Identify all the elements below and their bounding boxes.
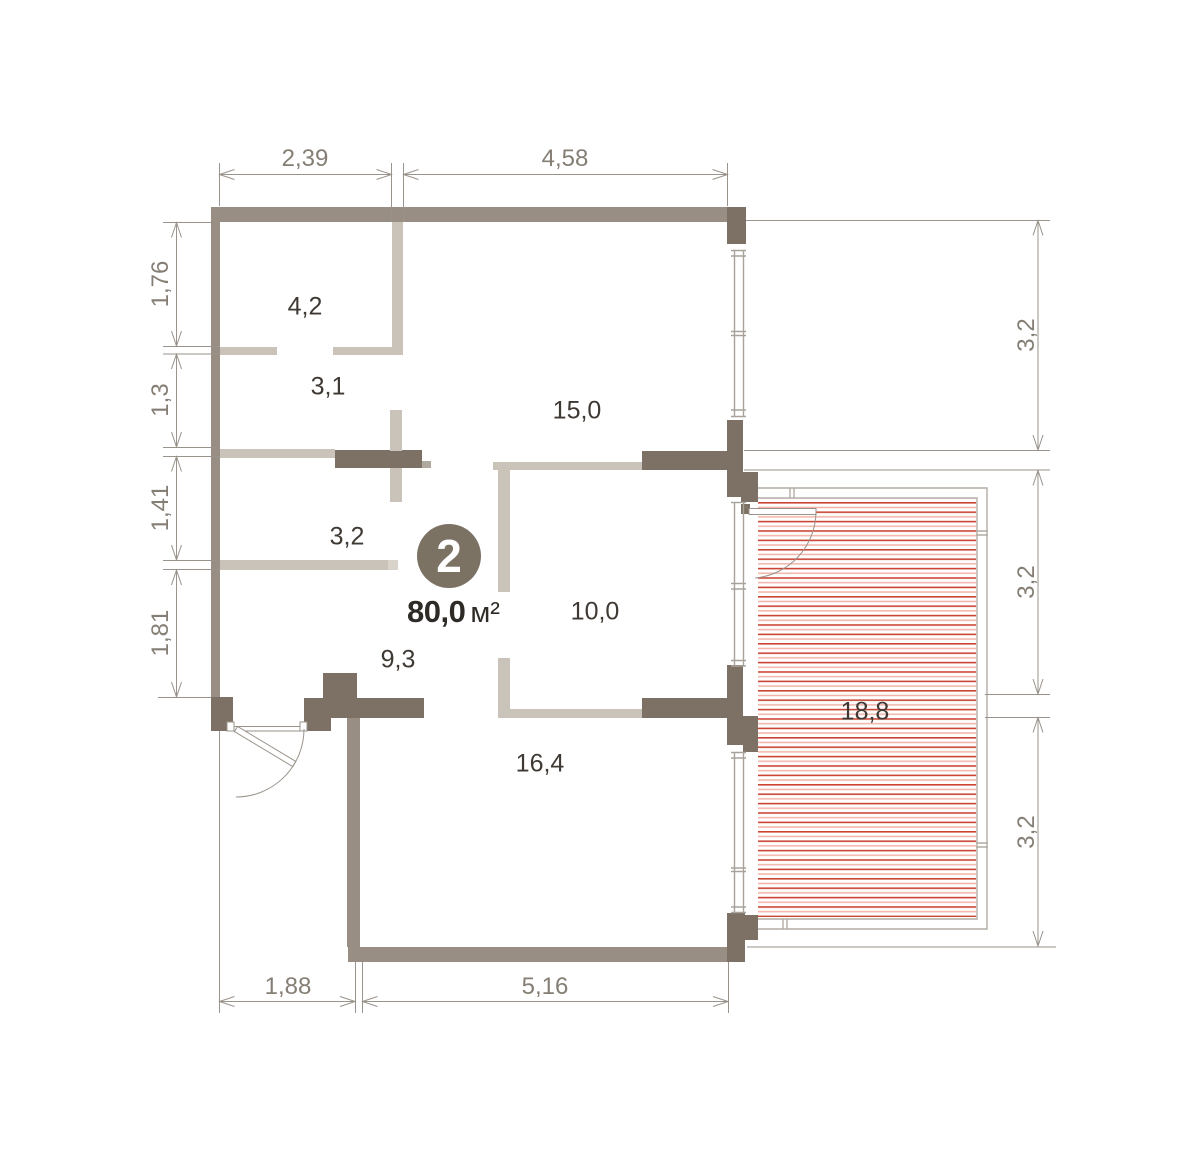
dim-top-2: 4,58 xyxy=(542,145,589,173)
room-label-10-0: 10,0 xyxy=(571,598,620,627)
apartment-area: 80,0 м² xyxy=(407,594,500,630)
area-value: 80,0 xyxy=(407,594,465,630)
dim-right-3: 3,2 xyxy=(1013,815,1041,848)
room-label-16-4: 16,4 xyxy=(516,750,565,779)
dim-right-1: 3,2 xyxy=(1013,318,1041,351)
interior-partitions xyxy=(220,222,642,718)
dim-bottom-1: 1,88 xyxy=(265,973,312,1001)
dim-left-1: 1,76 xyxy=(147,261,175,308)
dim-top-1: 2,39 xyxy=(282,145,329,173)
facade-windows xyxy=(731,250,746,913)
partition-end-cap xyxy=(388,560,398,570)
dim-left-3: 1,41 xyxy=(147,485,175,532)
apartment-number-badge: 2 xyxy=(417,524,481,588)
room-label-15-0: 15,0 xyxy=(553,397,602,426)
room-label-9-3: 9,3 xyxy=(381,646,416,675)
terrace-label-18-8: 18,8 xyxy=(841,698,890,727)
dim-left-4: 1,81 xyxy=(147,610,175,657)
entrance-door xyxy=(227,722,307,797)
room-label-4-2: 4,2 xyxy=(288,293,323,322)
room-label-3-2: 3,2 xyxy=(330,523,365,552)
wall-nub xyxy=(422,461,431,468)
dim-left-2: 1,3 xyxy=(147,383,175,416)
apartment-number: 2 xyxy=(436,533,462,579)
dim-right-2: 3,2 xyxy=(1013,565,1041,598)
floor-plan: 4,2 3,1 15,0 3,2 9,3 10,0 16,4 18,8 2,39… xyxy=(0,0,1200,1164)
dim-bottom-2: 5,16 xyxy=(522,973,569,1001)
room-label-3-1: 3,1 xyxy=(311,373,346,402)
area-unit: м² xyxy=(470,597,500,630)
